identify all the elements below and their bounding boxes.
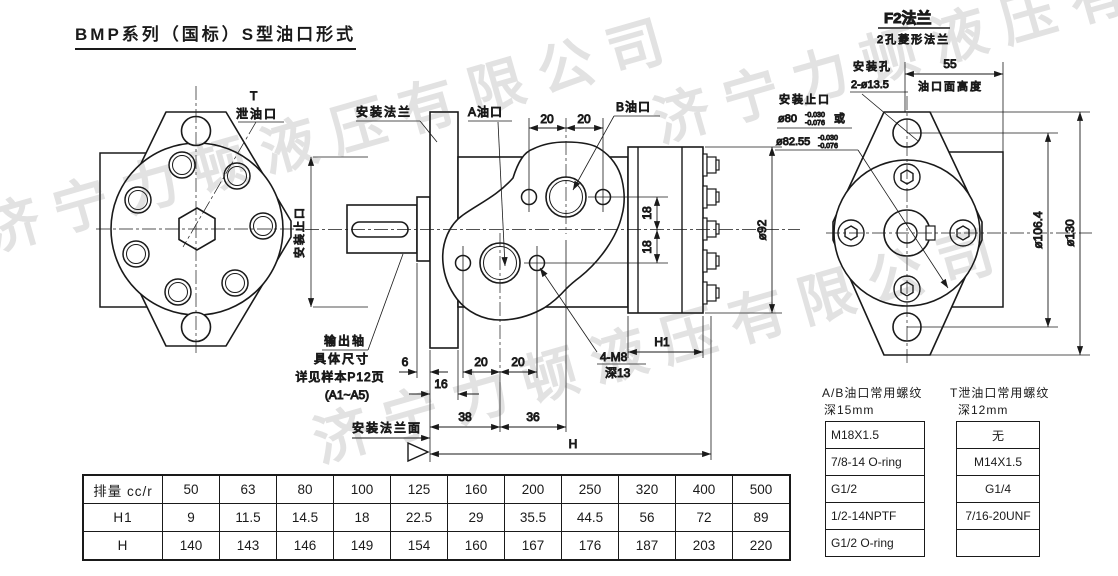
cell: 320	[619, 475, 676, 504]
output-shaft-note-2: 具体尺寸	[314, 352, 370, 366]
cell: 80	[277, 475, 334, 504]
t-port-label-line1: T	[250, 89, 258, 103]
ab-thread-caption: A/B油口常用螺纹	[822, 384, 922, 401]
cell: 72	[676, 504, 733, 532]
bolt-spec-depth: 深13	[605, 366, 631, 380]
cell: 22.5	[391, 504, 448, 532]
dim-h: H	[569, 437, 578, 451]
dim-20-bottom-right: 20	[511, 355, 525, 369]
row-header: H1	[83, 504, 163, 532]
cell: 154	[391, 532, 448, 561]
f2-spigot-d2: ø82.55	[776, 136, 810, 148]
f2-spigot-d1: ø80	[778, 113, 797, 125]
mount-holes-label: 安装孔	[853, 59, 892, 73]
cell: G1/2	[826, 476, 925, 503]
side-view: 安装止口	[292, 100, 800, 462]
dim-20-bottom-left: 20	[474, 355, 488, 369]
f2-subheader: 2孔菱形法兰	[877, 32, 950, 46]
cell: 50	[163, 475, 220, 504]
cell	[957, 530, 1040, 557]
drawing-sheet: BMP系列（国标）S型油口形式	[0, 0, 1118, 576]
a-port-label: A油口	[468, 105, 503, 119]
dim-38: 38	[458, 410, 472, 424]
mount-flange-label: 安装法兰	[356, 104, 412, 119]
f2-spigot-d1-tol-upper: -0.030	[805, 112, 825, 119]
output-shaft-note-3: 详见样本P12页	[295, 369, 384, 384]
cell: 44.5	[562, 504, 619, 532]
f2-spigot-d2-tol-lower: -0.076	[818, 143, 838, 150]
f2-header: F2法兰	[884, 9, 932, 27]
cell: 220	[733, 532, 791, 561]
bolt-spec-label: 4-M8	[600, 350, 628, 364]
dim-6: 6	[402, 355, 409, 369]
cell: 100	[334, 475, 391, 504]
cell: 125	[391, 475, 448, 504]
dim-20-top-left: 20	[540, 112, 554, 126]
cell: 35.5	[505, 504, 562, 532]
ab-thread-table: M18X1.5 7/8-14 O-ring G1/2 1/2-14NPTF G1…	[825, 421, 925, 557]
mount-holes-spec: 2-ø13.5	[851, 79, 889, 91]
dim-55: 55	[943, 57, 957, 71]
cell: 56	[619, 504, 676, 532]
dim-phi106: ø106.4	[1031, 211, 1045, 249]
left-view: T 泄油口	[96, 86, 301, 354]
rear-body	[628, 147, 703, 313]
output-shaft-note-1: 输出轴	[324, 333, 366, 348]
dim-20-top-right: 20	[577, 112, 591, 126]
dim-18-upper: 18	[640, 206, 654, 220]
cell: G1/2 O-ring	[826, 530, 925, 557]
dim-phi92: ø92	[755, 219, 769, 240]
b-port-label: B油口	[616, 100, 651, 114]
spigot-label: 安装止口	[292, 206, 306, 258]
output-shaft-note-4: (A1~A5)	[325, 388, 369, 402]
f2-spigot-d1-suffix: 或	[834, 112, 845, 125]
cell: 160	[448, 532, 505, 561]
displacement-table: 排量 cc/r 50 63 80 100 125 160 200 250 320…	[82, 474, 791, 561]
f2-spigot-label: 安装止口	[779, 92, 831, 106]
cell: 203	[676, 532, 733, 561]
cell: M18X1.5	[826, 422, 925, 449]
dim-phi130: ø130	[1063, 219, 1077, 247]
dim-18-lower: 18	[640, 240, 654, 254]
cell: 200	[505, 475, 562, 504]
cell: 7/16-20UNF	[957, 503, 1040, 530]
row-header: 排量 cc/r	[83, 475, 163, 504]
cell: 63	[220, 475, 277, 504]
cell: 9	[163, 504, 220, 532]
cell: 400	[676, 475, 733, 504]
cell: 500	[733, 475, 791, 504]
t-thread-caption: T泄油口常用螺纹	[950, 384, 1049, 401]
t-thread-depth: 深12mm	[958, 401, 1008, 418]
cell: 167	[505, 532, 562, 561]
cell: M14X1.5	[957, 449, 1040, 476]
cell: 187	[619, 532, 676, 561]
dim-36: 36	[526, 410, 540, 424]
f2-spigot-d2-tol-upper: -0.030	[818, 135, 838, 142]
cell: 143	[220, 532, 277, 561]
table-row: H 140 143 146 149 154 160 167 176 187 20…	[83, 532, 790, 561]
flange-face-label: 安装法兰面	[352, 420, 422, 435]
dim-16: 16	[434, 377, 448, 391]
end-cover-bolts	[703, 154, 719, 304]
cell: 146	[277, 532, 334, 561]
table-row: H1 9 11.5 14.5 18 22.5 29 35.5 44.5 56 7…	[83, 504, 790, 532]
dim-h1: H1	[654, 335, 670, 349]
cell: 18	[334, 504, 391, 532]
cell: 无	[957, 422, 1040, 449]
cell: 176	[562, 532, 619, 561]
cell: 11.5	[220, 504, 277, 532]
cell: 7/8-14 O-ring	[826, 449, 925, 476]
cell: 140	[163, 532, 220, 561]
t-port-label-line2: 泄油口	[236, 107, 278, 121]
cell: 160	[448, 475, 505, 504]
datum-triangle	[408, 443, 428, 461]
output-shaft	[347, 197, 430, 261]
cell: G1/4	[957, 476, 1040, 503]
table-row: 排量 cc/r 50 63 80 100 125 160 200 250 320…	[83, 475, 790, 504]
t-thread-table: 无 M14X1.5 G1/4 7/16-20UNF	[956, 421, 1040, 557]
cell: 250	[562, 475, 619, 504]
port-face-height-label: 油口面高度	[918, 79, 983, 93]
cell: 14.5	[277, 504, 334, 532]
cell: 149	[334, 532, 391, 561]
ab-thread-depth: 深15mm	[824, 401, 874, 418]
cell: 1/2-14NPTF	[826, 503, 925, 530]
f2-spigot-d1-tol-lower: -0.076	[805, 120, 825, 127]
cell: 89	[733, 504, 791, 532]
row-header: H	[83, 532, 163, 561]
cell: 29	[448, 504, 505, 532]
f2-view: F2法兰 2孔菱形法兰	[775, 9, 1092, 366]
